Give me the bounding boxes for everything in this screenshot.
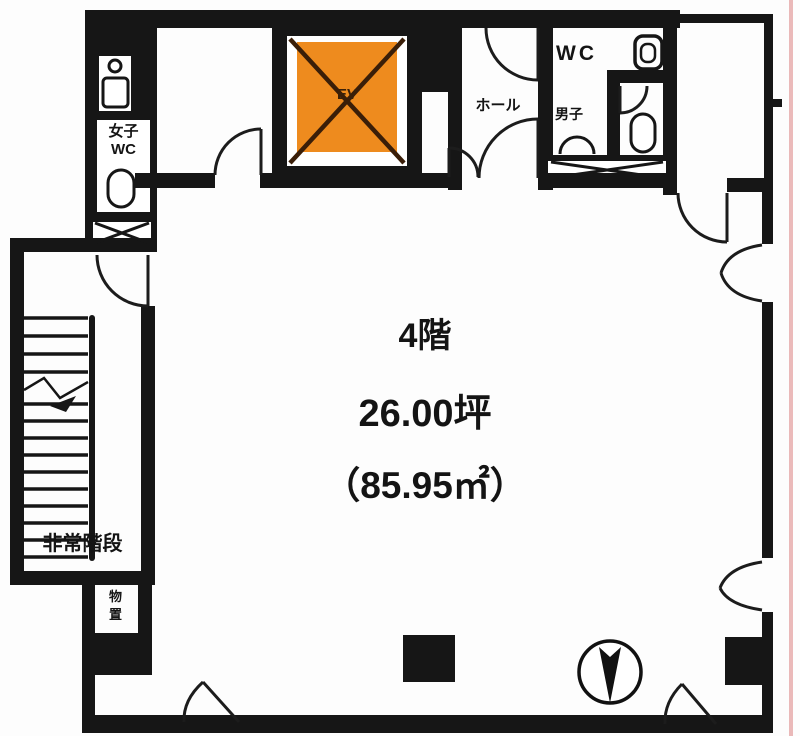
storage-label: 物 置	[93, 588, 138, 623]
door-arc	[486, 28, 538, 80]
floor-number: 4階	[125, 308, 725, 357]
wall	[10, 571, 155, 585]
stairs	[24, 318, 88, 557]
door-arc	[721, 273, 762, 301]
door-arc	[721, 245, 762, 273]
area-square-meters: （85.95㎡）	[125, 455, 725, 509]
hall-label: ホール	[458, 94, 538, 115]
door-arc	[479, 119, 538, 178]
mens-label: 男子	[555, 104, 583, 124]
wall	[10, 238, 155, 252]
door-arc	[97, 255, 148, 306]
door-arc	[720, 562, 762, 588]
door-arc	[720, 588, 762, 610]
wall	[82, 715, 773, 733]
wall	[260, 173, 450, 188]
wall	[771, 99, 782, 107]
boundary-line	[789, 0, 793, 736]
floor-plan: EV ホール WC 男子 女子 WC 非常階段 物 置 4階 26.00坪 （8…	[0, 0, 800, 736]
emergency-stairs-label: 非常階段	[24, 527, 141, 556]
wall	[762, 302, 773, 558]
area-tsubo: 26.00坪	[125, 382, 725, 437]
wall	[677, 14, 773, 23]
pillar	[725, 637, 765, 685]
door-arc	[215, 129, 261, 175]
stair-direction-arrow	[50, 396, 76, 412]
door-arc	[620, 86, 647, 113]
wall	[762, 184, 773, 244]
wall	[607, 70, 620, 160]
toilet-icon	[631, 114, 655, 152]
wc-label: WC	[556, 42, 597, 66]
stair-handrail	[89, 315, 95, 561]
wall	[10, 238, 24, 585]
room-sink	[99, 56, 131, 111]
wall	[420, 10, 462, 92]
urinal-icon	[560, 137, 594, 154]
compass-icon	[579, 641, 641, 703]
wall	[135, 173, 215, 188]
wall	[138, 585, 152, 675]
stair-break-line	[24, 378, 88, 398]
womens-wc-label: 女子 WC	[97, 123, 150, 159]
wall	[538, 173, 677, 188]
storage-mass	[82, 633, 139, 675]
elevator-label: EV	[297, 86, 397, 103]
urinal-icon	[641, 44, 655, 62]
door-arc	[678, 193, 727, 242]
urinal-icon	[635, 36, 662, 69]
pillar	[403, 635, 455, 682]
